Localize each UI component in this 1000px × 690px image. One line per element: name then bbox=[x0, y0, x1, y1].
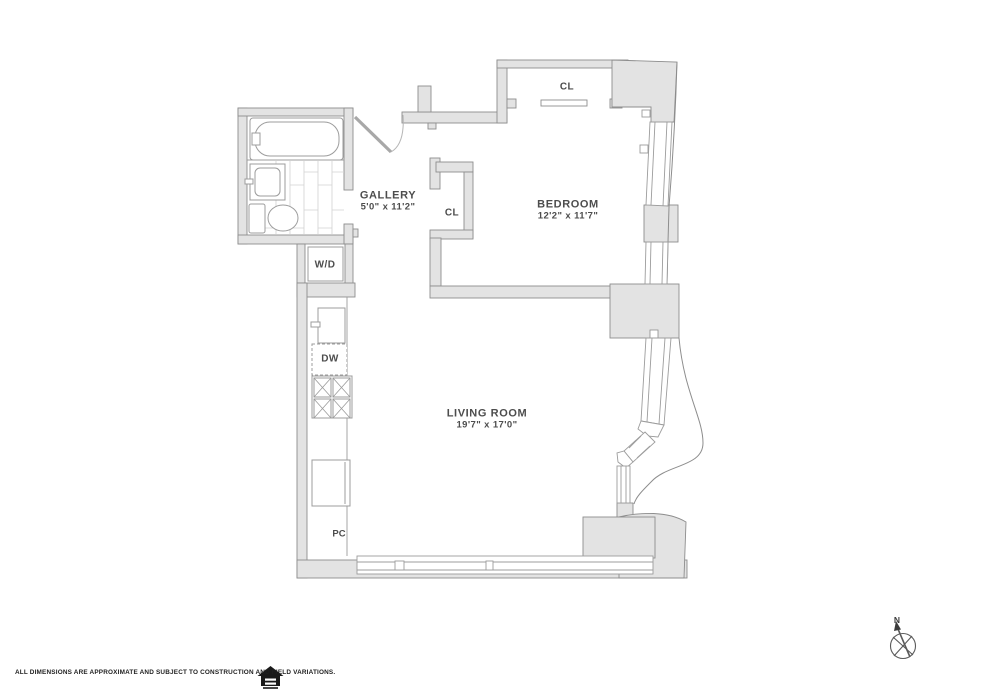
wall-entry-notch bbox=[428, 123, 436, 129]
closet-shelf bbox=[541, 100, 587, 106]
wall-bathroom-right-lower bbox=[344, 224, 353, 244]
compass-rose-icon bbox=[891, 621, 916, 659]
refrigerator-handle bbox=[311, 322, 320, 327]
bathroom-sink bbox=[245, 164, 285, 200]
wall-bedroom-bottom bbox=[430, 286, 612, 298]
compass-north-label: N bbox=[894, 615, 900, 625]
bay-window-vertical bbox=[641, 338, 671, 425]
toilet-bowl bbox=[268, 205, 298, 231]
wall-mass-notch bbox=[650, 330, 658, 338]
toilet-tank bbox=[249, 204, 265, 233]
refrigerator bbox=[311, 308, 345, 343]
bathtub bbox=[250, 118, 343, 160]
gallery-label: GALLERY bbox=[360, 190, 416, 202]
entry-door-swing-arc bbox=[391, 115, 403, 152]
washer-dryer-label: W/D bbox=[315, 260, 336, 271]
wall-closet-top bbox=[497, 60, 628, 68]
wall-hall-closet-top bbox=[436, 162, 473, 172]
disclaimer-text: ALL DIMENSIONS ARE APPROXIMATE AND SUBJE… bbox=[15, 669, 335, 676]
wall-closet-left bbox=[497, 60, 507, 123]
entry-door-leaf bbox=[355, 117, 391, 152]
window-latch-2 bbox=[640, 145, 648, 153]
wall-bathroom-left bbox=[238, 108, 247, 244]
entry-door bbox=[355, 115, 403, 152]
wall-hall-closet-right bbox=[464, 172, 473, 238]
bay-window-short bbox=[617, 466, 630, 503]
wall-entry-top bbox=[402, 112, 507, 123]
kitchen-sink bbox=[312, 460, 350, 506]
bedroom-window-2 bbox=[645, 242, 668, 284]
floor-plan-drawing bbox=[0, 0, 1000, 690]
wall-below-closet bbox=[430, 238, 441, 286]
wall-bathroom-right-upper bbox=[344, 108, 353, 190]
gallery-dimensions: 5'0" x 11'2" bbox=[360, 202, 416, 213]
wall-outer-left bbox=[297, 283, 307, 578]
wall-between-windows bbox=[644, 205, 678, 242]
bedroom-closet-label: CL bbox=[560, 82, 574, 93]
wall-bathroom-bottom bbox=[238, 235, 353, 244]
bathtub-faucet bbox=[252, 133, 260, 145]
bedroom-dimensions: 12'2" x 11'7" bbox=[537, 211, 599, 222]
pipe-chase-label: PC bbox=[332, 529, 345, 540]
wall-structural-mass bbox=[610, 284, 679, 338]
bedroom-label: BEDROOM bbox=[537, 199, 599, 211]
wall-wd-right bbox=[345, 244, 353, 284]
window-mullion-post-1 bbox=[395, 561, 404, 570]
hall-closet-label: CL bbox=[445, 208, 459, 219]
toilet bbox=[249, 204, 298, 233]
bedroom-window-1 bbox=[646, 122, 672, 206]
dishwasher-label: DW bbox=[321, 354, 338, 365]
floor-plan-page: GALLERY 5'0" x 11'2" BEDROOM 12'2" x 11'… bbox=[0, 0, 1000, 690]
kitchen bbox=[311, 297, 352, 556]
living-room-dimensions: 19'7" x 17'0" bbox=[447, 420, 528, 431]
window-mullion-post-2 bbox=[486, 561, 493, 570]
wall-entry-stub bbox=[418, 86, 431, 112]
living-room-label: LIVING ROOM bbox=[447, 408, 528, 420]
stove bbox=[312, 376, 352, 418]
window-latch-1 bbox=[642, 110, 650, 117]
wall-notch bbox=[353, 229, 358, 237]
wall-bottom-right-step bbox=[583, 517, 655, 558]
sink-faucet bbox=[245, 179, 253, 184]
wall-closet-stub-left bbox=[507, 99, 516, 108]
wall-wd-left bbox=[297, 244, 305, 284]
wall-bathroom-top bbox=[238, 108, 353, 116]
